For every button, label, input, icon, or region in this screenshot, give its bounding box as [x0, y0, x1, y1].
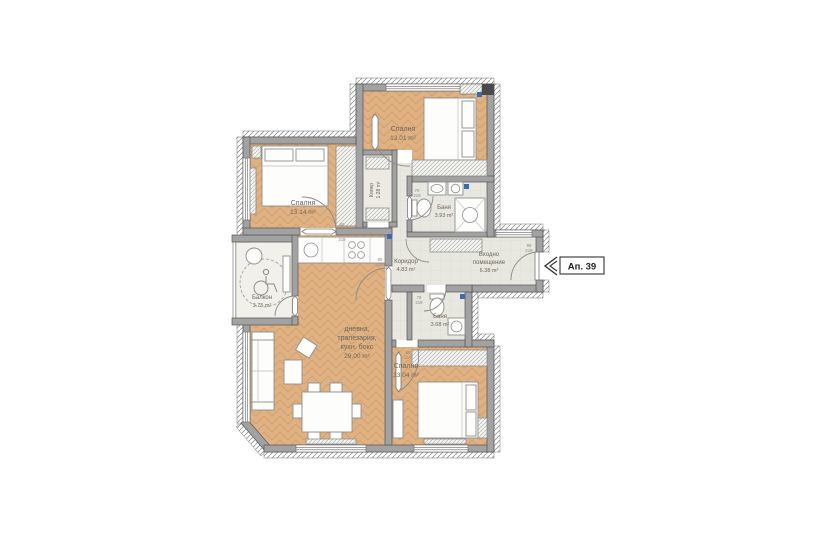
svg-text:13.01 m²: 13.01 m² [390, 135, 416, 142]
kitchen-sink [304, 243, 318, 257]
svg-text:Спалня: Спалня [394, 363, 419, 370]
dining-set [293, 383, 361, 441]
svg-text:3.75 m²: 3.75 m² [253, 303, 272, 309]
entrance-arrow-icon [545, 257, 557, 275]
svg-text:дневна,: дневна, [344, 326, 369, 333]
coffee-table [284, 360, 302, 384]
svg-text:Входно: Входно [479, 252, 500, 258]
svg-text:Коридор: Коридор [394, 259, 418, 265]
svg-text:кухн. бокс: кухн. бокс [341, 343, 374, 351]
svg-text:Спалня: Спалня [391, 126, 416, 133]
svg-text:4.83 m²: 4.83 m² [397, 267, 416, 273]
door-size: 219 [525, 248, 533, 253]
svg-text:трапезария,: трапезария, [337, 335, 376, 342]
radiator [306, 439, 356, 444]
utility-dot [464, 184, 469, 189]
svg-text:3.93 m²: 3.93 m² [435, 213, 454, 219]
window-bedroom-top [386, 84, 460, 91]
window-living-south [296, 445, 366, 452]
toilet-bath-top [412, 199, 431, 217]
toilet-bath-bottom [430, 294, 444, 316]
svg-text:13.04 m²: 13.04 m² [393, 372, 419, 379]
floor-plan-page: 80 219 80 219 70 219 70 219 80 219 90 21… [0, 0, 835, 540]
sink-bath-top [428, 182, 446, 195]
radiator [424, 439, 466, 444]
bed-left-bedroom [262, 146, 328, 206]
svg-text:помещение: помещение [473, 260, 506, 266]
wardrobe-top-bedroom [412, 160, 487, 176]
svg-text:13.14 m²: 13.14 m² [290, 209, 316, 216]
balcony-railing [233, 242, 236, 318]
entrance-marker: Ап. 39 [545, 257, 604, 275]
radiator [250, 168, 256, 214]
sink-bath-bottom [448, 318, 465, 335]
wardrobe-bottom-bedroom [412, 350, 487, 366]
floor-plan-drawing: 80 219 80 219 70 219 70 219 80 219 90 21… [0, 0, 835, 540]
apartment-tag-label: Ап. 39 [568, 262, 596, 273]
svg-text:3.68 m²: 3.68 m² [431, 322, 450, 328]
closet-shelf [366, 208, 389, 220]
utility-dot [387, 234, 392, 239]
door-size: 219 [338, 237, 346, 242]
window-living-west [243, 332, 250, 422]
utility-dot [477, 92, 482, 97]
svg-text:1.28 m²: 1.28 m² [376, 181, 382, 198]
svg-text:Балкон: Балкон [252, 295, 272, 301]
door-size: 219 [415, 300, 423, 305]
door-size: 219 [376, 262, 384, 267]
shower-bath-top [455, 198, 485, 232]
washing-machine [448, 182, 463, 195]
utility-dot [460, 294, 465, 299]
nightstand [478, 418, 487, 438]
window-bedroom-left [243, 158, 250, 220]
bed-top-bedroom [424, 98, 476, 160]
window-entry-north [496, 230, 532, 237]
entrance-arrow-inner-icon [550, 261, 557, 271]
svg-text:Спалня: Спалня [291, 200, 316, 207]
planter [283, 256, 290, 292]
window-bedroom-bottom [414, 445, 468, 452]
balcony-table [246, 248, 262, 264]
nightstand [252, 146, 261, 158]
svg-text:Килер: Килер [369, 183, 375, 197]
door-size: 219 [413, 193, 421, 198]
svg-text:29.00 m²: 29.00 m² [344, 353, 370, 360]
door-size: 80 [340, 222, 345, 227]
svg-text:6.38 m²: 6.38 m² [480, 268, 499, 274]
svg-text:Баня: Баня [437, 205, 451, 211]
closet-shelf [366, 157, 389, 169]
column [482, 84, 494, 95]
sofa [252, 332, 274, 410]
wardrobe-left-bedroom [336, 146, 356, 226]
door-size: 219 [404, 355, 412, 360]
desk [393, 400, 403, 438]
svg-text:Баня: Баня [433, 314, 447, 320]
entry-wardrobe [430, 239, 482, 252]
label-closet: Килер 1.28 m² [369, 181, 382, 198]
bed-bottom-bedroom [418, 382, 478, 438]
dining-table [302, 392, 352, 432]
